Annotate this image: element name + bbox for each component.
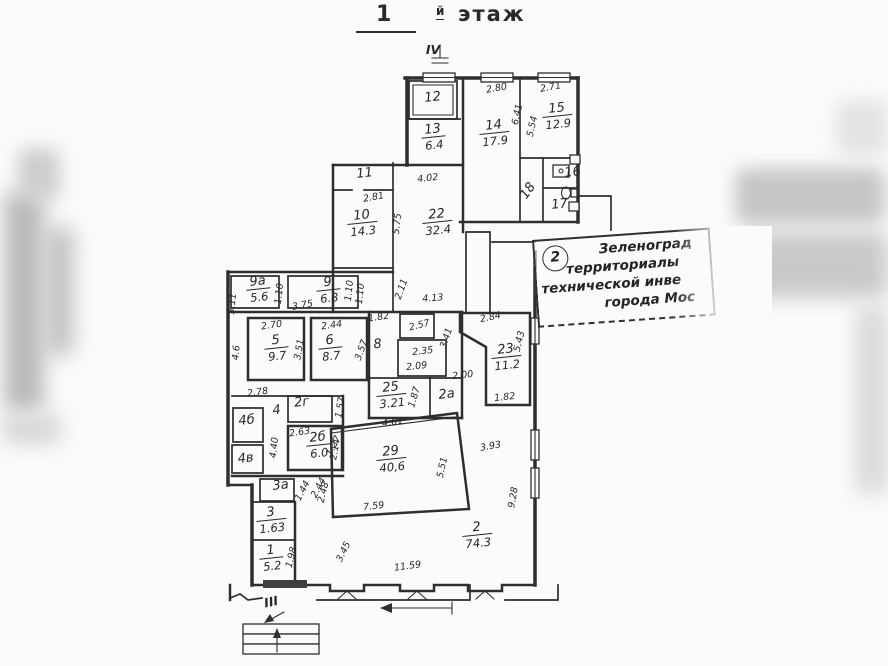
dimension-label: 1.57	[333, 396, 348, 419]
svg-text:74.3: 74.3	[465, 535, 492, 552]
room-label-4в: 4в	[237, 450, 254, 467]
dimension-label: 2.81	[362, 190, 385, 205]
dimension-label: 4.61	[381, 416, 403, 430]
dimension-label: 2.63	[288, 426, 310, 440]
dimension-label: 1.10	[354, 283, 367, 305]
svg-text:2б: 2б	[309, 429, 327, 446]
svg-text:5.2: 5.2	[262, 558, 282, 574]
svg-text:3а: 3а	[272, 477, 290, 494]
dimension-label: 9.28	[506, 486, 521, 509]
room-label-12: 12	[424, 89, 442, 106]
room-label-9а: 9а5.6	[245, 273, 272, 305]
svg-text:17.9: 17.9	[482, 133, 509, 150]
dimension-label: 3.41	[438, 326, 455, 350]
svg-text:11: 11	[356, 165, 374, 182]
floor-word: этаж	[458, 2, 526, 26]
dimension-label: 3.75	[291, 298, 314, 313]
stair-marker-III: III	[263, 593, 280, 611]
dimension-label: 2.80	[485, 81, 508, 96]
stairs-bottom	[243, 612, 319, 654]
dimension-label: 1.98	[284, 546, 300, 569]
dimension-label: 1.44	[293, 479, 313, 503]
dimension-label: 3.45	[334, 540, 353, 564]
room-label-6: 68.7	[317, 332, 344, 364]
bti-stamp: 2 Зеленоград территориалы технической ин…	[532, 228, 716, 328]
svg-text:9.7: 9.7	[267, 348, 287, 364]
svg-text:8.7: 8.7	[321, 348, 341, 364]
dimension-label: 4.13	[422, 292, 444, 304]
room-label-2г: 2г	[293, 394, 310, 411]
room-label-15: 1512.9	[541, 99, 574, 132]
svg-text:25: 25	[382, 379, 400, 396]
dimension-labels: 2.802.716.415.544.022.815.751.102.114.13…	[226, 80, 562, 574]
svg-text:1: 1	[266, 543, 276, 559]
svg-text:3.21: 3.21	[379, 395, 406, 412]
dimension-label: 5.51	[435, 456, 450, 479]
room-label-2а: 2а	[438, 386, 456, 403]
floor-number: 1	[376, 2, 392, 27]
svg-text:2: 2	[472, 520, 482, 536]
room-label-5: 59.7	[263, 332, 290, 364]
dimension-label: 1.82	[367, 311, 389, 325]
svg-text:4в: 4в	[237, 450, 254, 467]
page-title: 1 й этаж	[0, 0, 888, 40]
svg-text:8: 8	[373, 337, 383, 353]
dimension-label: 4.40	[268, 437, 281, 459]
room-label-2: 274.3	[461, 518, 494, 551]
svg-text:12.9: 12.9	[545, 116, 572, 133]
room-label-8: 8	[373, 337, 383, 353]
room-label-4б: 4б	[238, 412, 256, 429]
room-label-14: 1417.9	[478, 116, 511, 149]
dimension-label: 1.82	[494, 391, 516, 404]
floor-suffix: й	[436, 4, 444, 20]
room-label-9: 96.8	[315, 274, 342, 306]
room-label-25: 253.21	[375, 378, 408, 411]
dimension-label: 2.44	[320, 319, 342, 333]
dimension-label: 7.59	[363, 500, 385, 513]
dimension-label: 5.75	[391, 213, 404, 235]
svg-text:9: 9	[323, 275, 333, 291]
svg-text:6.4: 6.4	[424, 137, 444, 153]
room-label-3: 31.63	[255, 503, 288, 536]
svg-text:29: 29	[382, 443, 400, 460]
svg-text:1.63: 1.63	[259, 520, 286, 537]
room-label-4: 4	[272, 403, 282, 419]
dimension-label: 2.57	[408, 318, 431, 334]
floor-number-underline	[356, 31, 416, 33]
room-label-17: 17	[551, 196, 570, 213]
dimension-label: 2.70	[260, 319, 282, 333]
svg-text:2а: 2а	[438, 386, 456, 403]
scanned-floor-plan-page: { "title": {"floor": "1", "suffix": "й",…	[0, 0, 888, 666]
svg-text:5: 5	[271, 333, 281, 349]
dimension-label: 11.59	[393, 559, 421, 574]
dimension-label: 3.93	[479, 439, 502, 454]
room-label-3а: 3а	[272, 477, 290, 494]
dimension-label: 5.43	[512, 330, 528, 353]
entrance-arrow	[380, 602, 452, 614]
floor-plan-svg: 12136.41417.91512.9161718111014.32232.49…	[0, 0, 888, 666]
dimension-label: 3.11	[226, 293, 239, 315]
room-label-11: 11	[356, 165, 374, 182]
svg-text:6.8: 6.8	[319, 290, 339, 306]
dimension-label: 4.6	[230, 345, 243, 361]
svg-text:9а: 9а	[249, 273, 267, 290]
svg-text:5.6: 5.6	[249, 289, 269, 305]
svg-text:40,6: 40,6	[379, 459, 406, 476]
dimension-label: 2.71	[539, 80, 562, 95]
entry-threshold	[263, 580, 307, 588]
svg-text:2г: 2г	[293, 394, 310, 411]
dimension-label: 2.09	[406, 360, 428, 373]
dimension-label: 1.87	[406, 386, 422, 409]
room-label-1: 15.2	[258, 542, 285, 574]
dimension-label: 2.35	[412, 345, 434, 358]
room-label-13: 136.4	[420, 121, 447, 153]
room-label-29: 2940,6	[375, 442, 408, 475]
dimension-label: 4.02	[417, 172, 439, 185]
svg-text:22: 22	[428, 206, 446, 223]
svg-text:32.4: 32.4	[425, 222, 452, 239]
svg-text:13: 13	[424, 121, 442, 138]
svg-text:11.2: 11.2	[494, 357, 521, 374]
room-label-22: 2232.4	[421, 205, 454, 238]
svg-text:6: 6	[325, 333, 335, 349]
svg-text:4: 4	[272, 403, 282, 419]
room-label-16: 16	[564, 164, 582, 181]
svg-text:14.3: 14.3	[350, 223, 377, 240]
svg-text:17: 17	[551, 196, 570, 213]
svg-text:3: 3	[266, 505, 276, 521]
svg-text:4б: 4б	[238, 412, 256, 429]
dimension-label: 2.11	[393, 277, 411, 301]
svg-text:15: 15	[548, 100, 566, 117]
dimension-label: 2.00	[452, 369, 474, 382]
walls	[228, 78, 611, 600]
dimension-label: 2.78	[246, 386, 268, 400]
svg-text:14: 14	[485, 117, 503, 134]
room-label-10: 1014.3	[346, 206, 379, 239]
dimension-label: 1.10	[273, 283, 286, 305]
svg-text:16: 16	[564, 164, 582, 181]
svg-text:12: 12	[424, 89, 442, 106]
dimension-label: 5.54	[525, 115, 540, 138]
svg-text:10: 10	[353, 207, 371, 224]
dimension-label: 6.41	[510, 103, 525, 126]
stair-marker-IV: IV	[426, 42, 442, 57]
